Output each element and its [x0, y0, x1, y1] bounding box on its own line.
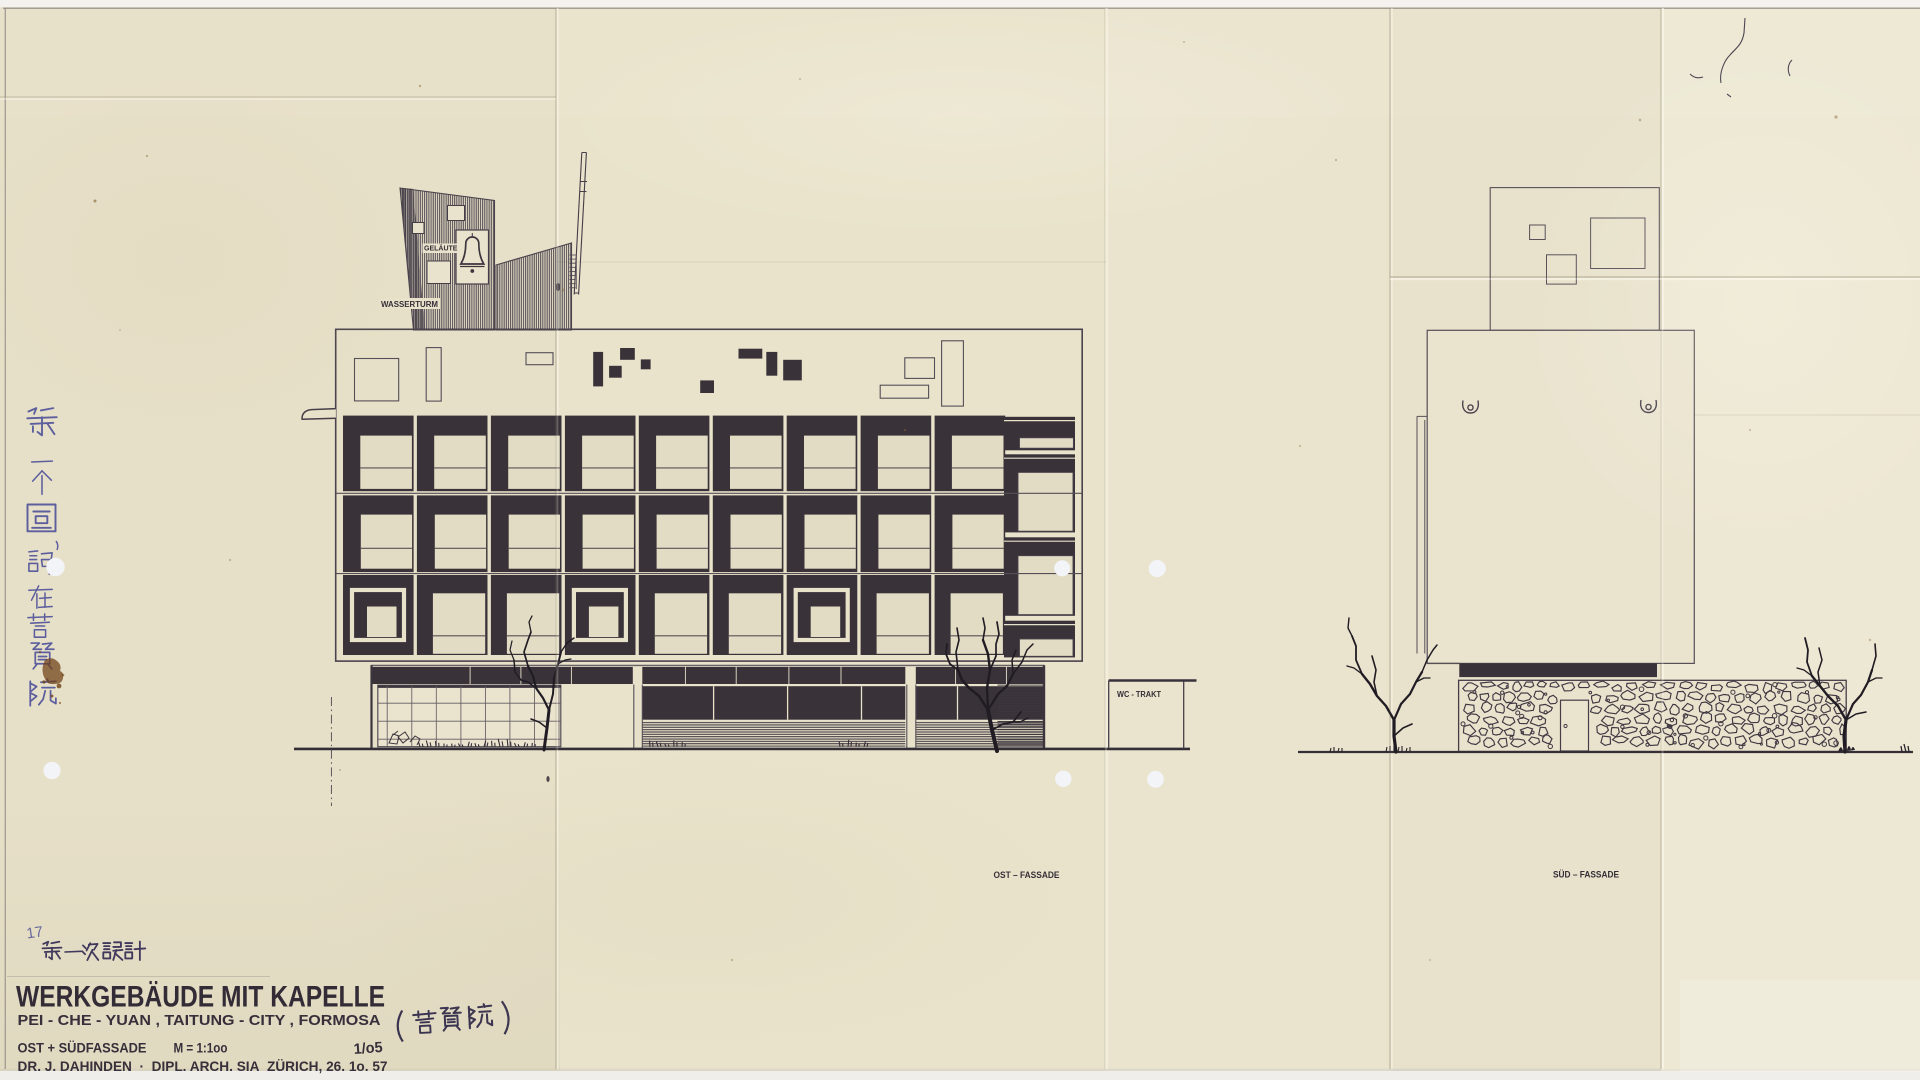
- svg-text:OST + SÜDFASSADE: OST + SÜDFASSADE: [18, 1040, 147, 1056]
- svg-text:DR. J. DAHINDEN · DIPL. ARCH: DR. J. DAHINDEN · DIPL. ARCH. SIA ZÜRICH…: [18, 1058, 388, 1074]
- svg-text:M = 1:1oo: M = 1:1oo: [174, 1041, 228, 1056]
- svg-text:PEI - CHE - YUAN , TAITUNG - C: PEI - CHE - YUAN , TAITUNG - CITY , FORM…: [18, 1013, 381, 1029]
- svg-text:1/o5: 1/o5: [353, 1039, 383, 1058]
- svg-text:WC - TRAKT: WC - TRAKT: [1117, 689, 1162, 699]
- svg-text:WERKGEBÄUDE MIT KAPELLE: WERKGEBÄUDE MIT KAPELLE: [16, 981, 385, 1014]
- svg-text:SÜD – FASSADE: SÜD – FASSADE: [1553, 869, 1620, 880]
- svg-text:17: 17: [25, 923, 44, 942]
